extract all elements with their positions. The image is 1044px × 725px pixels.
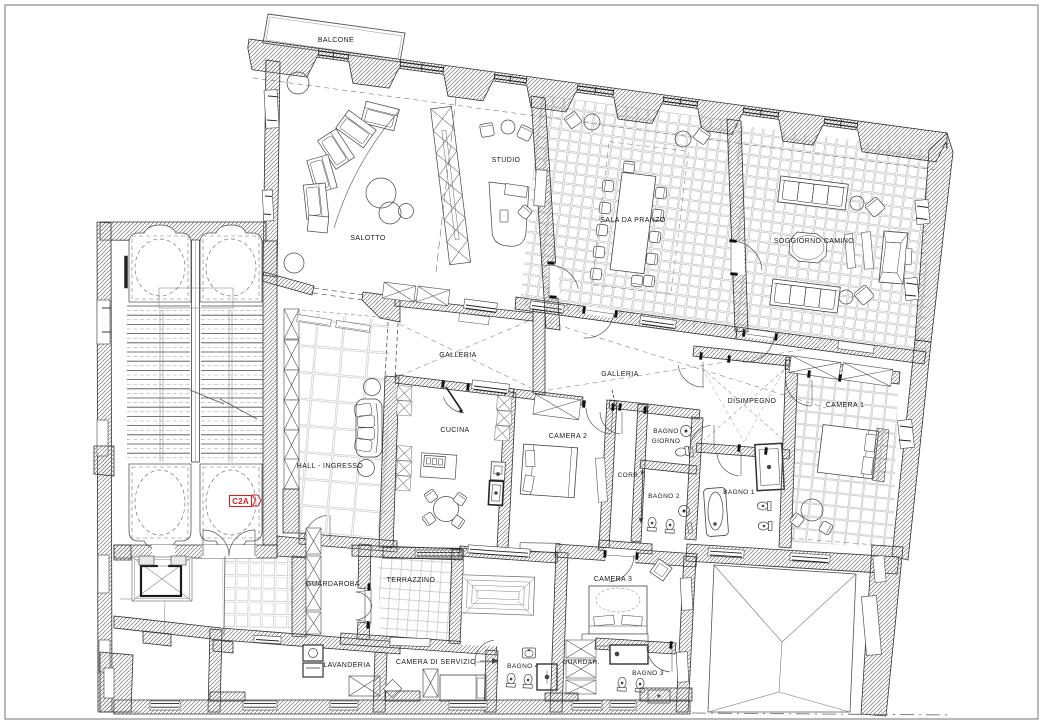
svg-text:DISIMPEGNO: DISIMPEGNO (728, 398, 777, 405)
svg-text:GALLERIA: GALLERIA (601, 371, 638, 378)
svg-text:SOGGIORNO CAMINO: SOGGIORNO CAMINO (774, 238, 854, 245)
svg-text:CAMERA 1: CAMERA 1 (826, 402, 865, 409)
svg-text:STUDIO: STUDIO (492, 157, 521, 164)
svg-text:BAGNO 1: BAGNO 1 (723, 489, 755, 496)
svg-text:CORR.: CORR. (618, 472, 641, 479)
svg-text:GUARDAR.: GUARDAR. (562, 659, 600, 666)
svg-text:BALCONE: BALCONE (318, 37, 354, 44)
svg-text:SALA DA PRANZO: SALA DA PRANZO (600, 217, 666, 224)
svg-text:CAMERA 2: CAMERA 2 (549, 433, 588, 440)
svg-text:SALOTTO: SALOTTO (350, 235, 386, 242)
svg-text:C2A: C2A (232, 497, 249, 506)
svg-text:1:100 scala: 1:100 scala (120, 709, 141, 714)
svg-text:BAGNO: BAGNO (653, 428, 678, 435)
svg-text:BAGNO 2: BAGNO 2 (648, 493, 680, 500)
svg-text:GUARDAROBA: GUARDAROBA (306, 581, 360, 588)
svg-text:CAMERA 3: CAMERA 3 (594, 576, 633, 583)
svg-text:CUCINA: CUCINA (440, 427, 469, 434)
svg-text:GALLERIA: GALLERIA (439, 352, 476, 359)
svg-text:CAMERA DI SERVIZIO: CAMERA DI SERVIZIO (396, 659, 476, 666)
svg-text:BAGNO 4: BAGNO 4 (507, 663, 539, 670)
svg-text:TERRAZZINO: TERRAZZINO (387, 577, 436, 584)
svg-text:GIORNO: GIORNO (652, 438, 681, 445)
svg-text:HALL - INGRESSO: HALL - INGRESSO (297, 463, 364, 470)
svg-text:BAGNO 3: BAGNO 3 (632, 670, 664, 677)
svg-text:LAVANDERIA: LAVANDERIA (323, 662, 370, 669)
